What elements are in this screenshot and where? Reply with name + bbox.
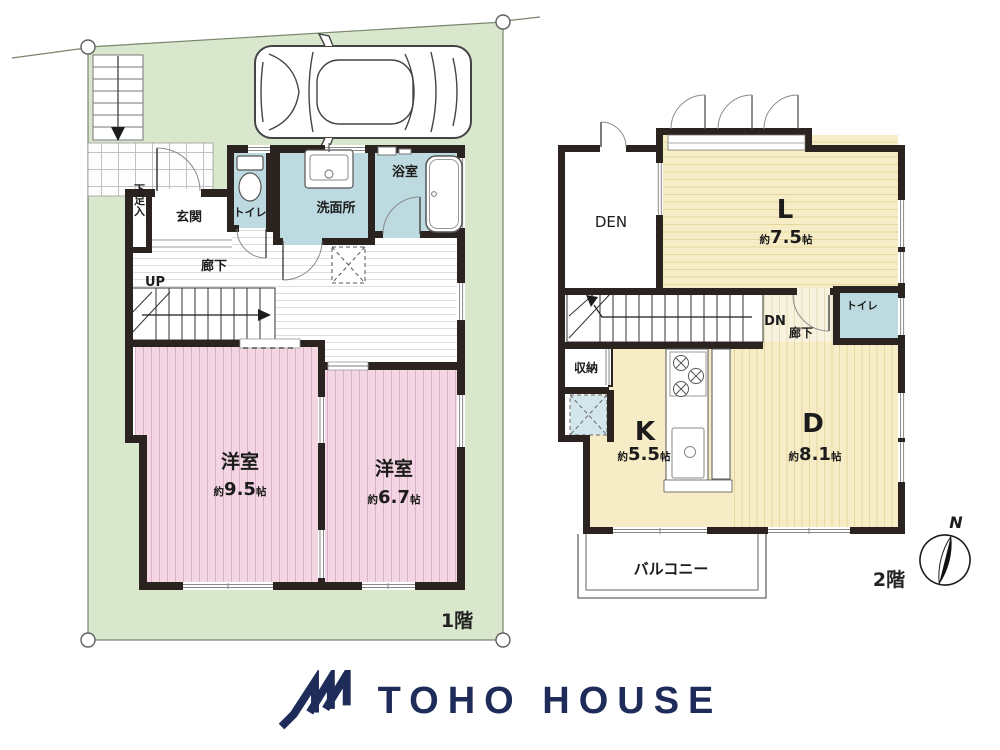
stove-icon <box>670 352 706 397</box>
label-hallway1: 廊下 <box>201 258 227 274</box>
compass-icon: N <box>915 513 976 590</box>
washbasin-icon <box>305 143 353 188</box>
label-storage: 収納 <box>574 360 598 375</box>
label-den: DEN <box>595 213 627 231</box>
living-north-windows <box>668 95 805 150</box>
room2-sliding-door <box>328 362 368 370</box>
label-room2-name: 洋室 <box>375 457 413 480</box>
label-compass-north: N <box>949 513 963 532</box>
den-living-window <box>656 163 663 215</box>
brand-footer: TOHO HOUSE <box>0 652 1000 750</box>
storage-door <box>604 349 611 385</box>
lot-line-ext-left <box>12 48 86 58</box>
brand-name: TOHO HOUSE <box>378 680 723 723</box>
kitchen-counter <box>664 349 732 492</box>
label-toilet2: トイレ <box>846 300 878 312</box>
label-stairs-down: DN <box>764 314 786 329</box>
pipe-space-hatch <box>570 395 607 435</box>
room1-sliding-door <box>240 339 300 348</box>
toho-house-logo-icon <box>278 670 352 732</box>
label-washroom: 洗面所 <box>316 200 355 216</box>
toilet1-fixture-icon <box>237 156 263 201</box>
label-floor2: 2階 <box>873 569 905 591</box>
label-floor1: 1階 <box>441 610 473 632</box>
label-entrance: 玄関 <box>176 209 202 225</box>
label-toilet1: トイレ <box>234 206 267 219</box>
stairs-up <box>128 288 275 340</box>
label-hallway2: 廊下 <box>789 325 813 340</box>
floor1-plan: 下足入 玄関 トイレ 洗面所 浴室 廊下 UP 洋室 約9.5帖 洋室 約6.7… <box>12 15 540 647</box>
label-balcony: バルコニー <box>634 560 709 578</box>
label-room1-name: 洋室 <box>221 450 259 473</box>
label-shoe-closet: 下足入 <box>133 183 146 217</box>
floorplan-canvas: 下足入 玄関 トイレ 洗面所 浴室 廊下 UP 洋室 約9.5帖 洋室 約6.7… <box>0 0 1000 652</box>
exterior-stairs <box>93 55 143 141</box>
floorplan-svg: 下足入 玄関 トイレ 洗面所 浴室 廊下 UP 洋室 約9.5帖 洋室 約6.7… <box>0 0 1000 652</box>
stairs-down-2f <box>567 290 763 342</box>
label-living-name: L <box>777 195 794 225</box>
den-door <box>601 122 626 147</box>
label-dining-name: D <box>802 409 824 439</box>
floor2-plan: N DEN L 約7.5帖 トイレ DN 廊下 収納 K 約5.5帖 D 約8.… <box>558 95 975 598</box>
label-kitchen-name: K <box>635 417 656 447</box>
floor-hatch <box>332 247 365 283</box>
label-stairs-up: UP <box>145 275 165 290</box>
car-icon <box>255 34 471 150</box>
label-bathroom: 浴室 <box>392 164 418 180</box>
sink-icon <box>672 428 704 478</box>
